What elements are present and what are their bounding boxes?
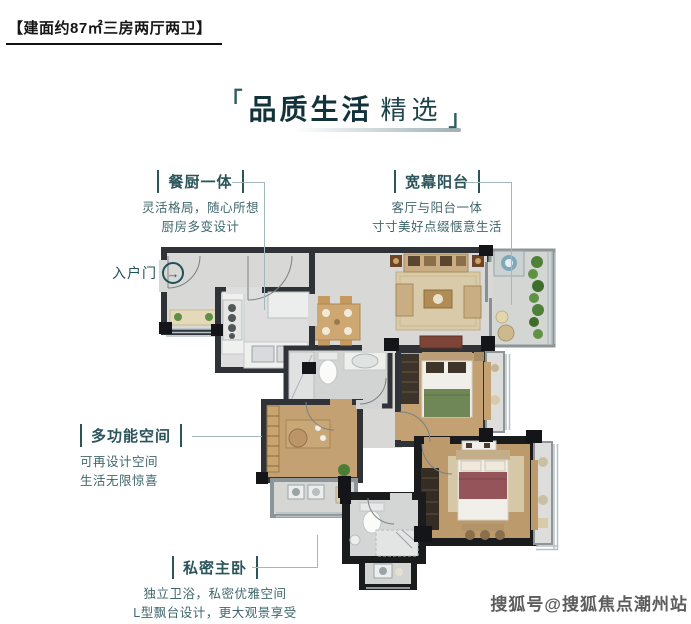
- callout-multi-desc2: 生活无限惊喜: [80, 472, 210, 491]
- shared-bathroom: [286, 348, 390, 406]
- leader-kitchen-v: [264, 182, 265, 310]
- living-dining-room: [312, 250, 490, 349]
- watermark: 搜狐号@搜狐焦点潮州站: [490, 590, 688, 615]
- callout-balcony-desc1: 客厅与阳台一体: [348, 199, 526, 218]
- title-bracket-left: 「: [220, 83, 242, 115]
- floorplan-ad-page: { "header": { "area_tag": "【建面约87㎡三房两厅两卫…: [0, 0, 691, 616]
- leader-balcony-v: [511, 182, 512, 305]
- area-tag: 【建面约87㎡三房两厅两卫】: [6, 17, 222, 45]
- second-bedroom: [398, 336, 510, 444]
- callout-entry-label: 入户门: [112, 263, 157, 283]
- master-bathroom: [346, 496, 422, 560]
- leader-multi-h: [192, 436, 262, 437]
- stove: [223, 300, 242, 340]
- bed-maroon: [456, 450, 510, 540]
- multifunction-room: [264, 402, 360, 480]
- leader-master-h: [252, 567, 318, 568]
- bookshelf: [267, 406, 279, 472]
- toilet: [318, 352, 338, 384]
- main-balcony: [484, 250, 555, 346]
- callout-kitchen-desc1: 灵活格局，随心所想: [118, 199, 283, 218]
- bath-bump: [362, 560, 414, 588]
- page-title: 「 品质生活 精选 」: [0, 88, 691, 128]
- master-bedroom: [418, 440, 558, 550]
- callout-kitchen: 餐厨一体 灵活格局，随心所想 厨房多变设计: [118, 170, 283, 238]
- title-underline: [293, 128, 461, 132]
- callout-balcony-desc2: 寸寸美好点缀惬意生活: [348, 218, 526, 237]
- plant: [338, 464, 350, 476]
- shower: [376, 530, 418, 556]
- callout-multi-desc1: 可再设计空间: [80, 453, 210, 472]
- entry-arrow-icon: →: [162, 262, 184, 284]
- tv-console: [420, 336, 462, 348]
- callout-balcony: 宽幕阳台 客厅与阳台一体 寸寸美好点缀惬意生活: [348, 170, 526, 238]
- leader-kitchen-h: [232, 182, 264, 183]
- callout-master-desc2: L型飘台设计，更大观景享受: [125, 604, 305, 623]
- wardrobe-2: [401, 354, 419, 404]
- bathroom-sink: [344, 352, 386, 370]
- callout-kitchen-desc2: 厨房多变设计: [118, 218, 283, 237]
- callout-multi-label: 多功能空间: [80, 424, 182, 447]
- callout-master-desc1: 独立卫浴，私密优雅空间: [125, 585, 305, 604]
- callout-master-label: 私密主卧: [172, 556, 258, 579]
- callout-entry: 入户门 →: [112, 262, 184, 284]
- desk: [286, 420, 330, 448]
- callout-kitchen-label: 餐厨一体: [157, 170, 243, 193]
- title-accent: 精选: [381, 90, 443, 127]
- title-main: 品质生活: [248, 88, 372, 128]
- callout-multi: 多功能空间 可再设计空间 生活无限惊喜: [80, 424, 210, 492]
- leader-master-v: [317, 535, 318, 568]
- leader-balcony-h: [466, 182, 511, 183]
